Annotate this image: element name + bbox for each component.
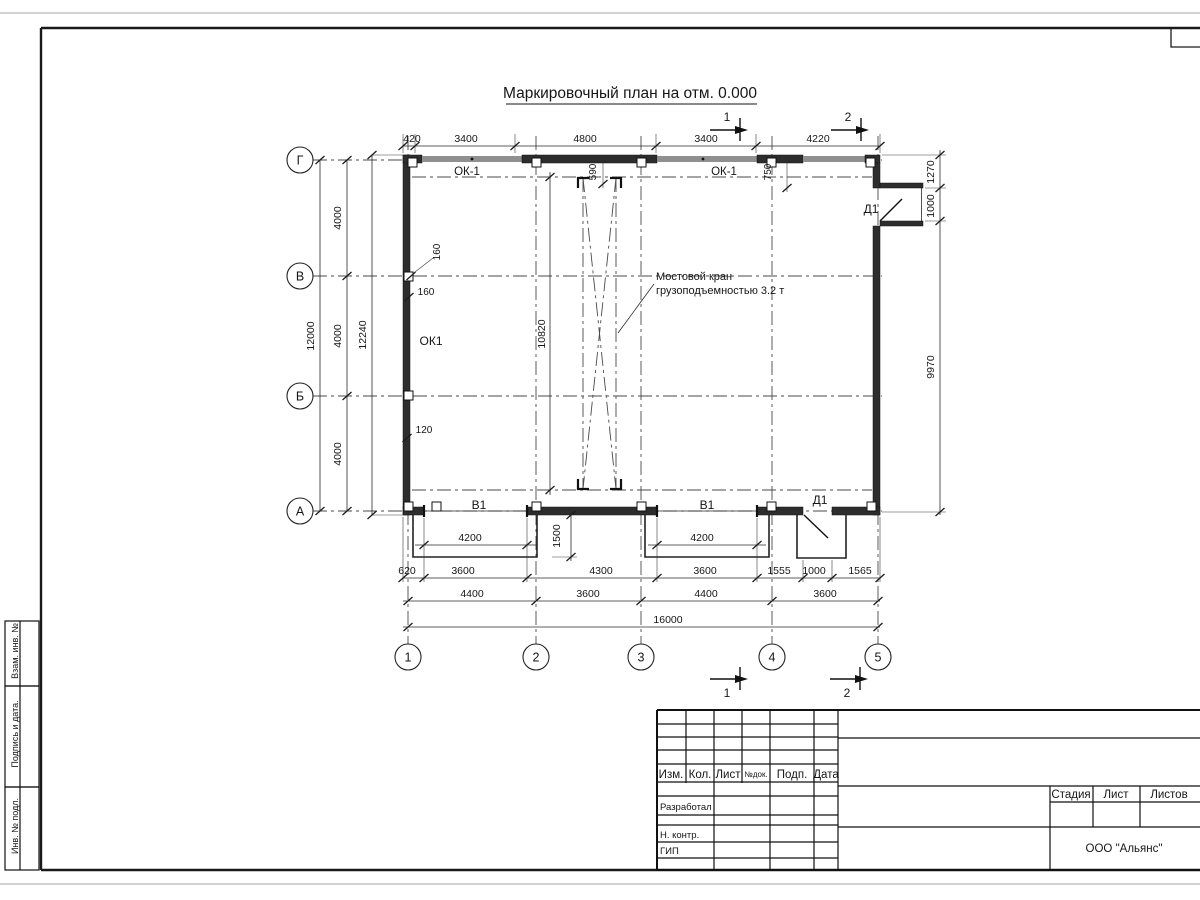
- dim-rowb-2: 4300: [589, 565, 613, 577]
- window-band-3: [803, 156, 865, 162]
- axis-row-b: Б: [296, 390, 304, 404]
- axis-col-5: 5: [875, 651, 882, 665]
- dim-right-1: 1000: [925, 194, 937, 218]
- dim-160-b: 160: [418, 287, 435, 298]
- tb-list: Лист: [716, 769, 742, 781]
- plan-title: Маркировочный план на отм. 0.000: [503, 85, 757, 104]
- dim-apron-depth: 1500: [551, 524, 563, 548]
- sheet-frame: [41, 28, 1200, 870]
- dim-rowc-0: 4400: [460, 588, 484, 600]
- label-window-top-right: ОК-1: [711, 166, 737, 178]
- drawing-canvas: Взам. инв. № Подпись и дата. Инв. № подл…: [0, 0, 1200, 900]
- dim-top-3: 3400: [694, 133, 718, 145]
- section-marker-1-bottom: 1: [710, 667, 748, 700]
- dim-top-2: 4800: [573, 133, 597, 145]
- crane-note-line2: грузоподъемностью 3.2 т: [656, 285, 784, 297]
- dim-rowb-5: 1000: [802, 565, 826, 577]
- tb-role-gip: ГИП: [660, 846, 679, 857]
- dim-top-0: 420: [403, 133, 421, 145]
- axis-col-2: 2: [533, 651, 540, 665]
- plan-labels: ОК-1 ОК-1 ОК1 В1 В1 Д1 Д1: [420, 166, 879, 512]
- dim-left-seg-1: 4000: [332, 324, 344, 348]
- dim-left-overall: 12240: [357, 320, 369, 349]
- dim-right-0: 1270: [925, 160, 937, 184]
- axis-row-g: Г: [297, 154, 304, 168]
- axis-col-3: 3: [638, 651, 645, 665]
- dimension-texts: 420 3400 4800 3400 4220 4000 4000 4000 1…: [305, 133, 937, 626]
- axis-row-v: В: [296, 270, 304, 284]
- building-walls: [403, 155, 923, 538]
- apron-door: [797, 515, 846, 558]
- svg-text:1: 1: [724, 110, 731, 124]
- label-gate1: В1: [472, 498, 487, 512]
- column-marks: [404, 158, 876, 511]
- label-window-top-left: ОК-1: [454, 166, 480, 178]
- stamp-inv: Инв. № подл.: [10, 798, 20, 854]
- label-door-right: Д1: [864, 202, 879, 216]
- vestibule-bottom-wall: [880, 221, 923, 226]
- dim-590: 590: [588, 163, 599, 180]
- svg-text:2: 2: [845, 110, 852, 124]
- dim-160-a: 160: [432, 243, 443, 260]
- dim-rowc-1: 3600: [576, 588, 600, 600]
- title-block: Изм. Кол. Лист №док. Подп. Дата Разработ…: [657, 710, 1200, 870]
- page-title: Маркировочный план на отм. 0.000: [503, 85, 757, 102]
- tb-company: ООО "Альянс": [1086, 843, 1163, 855]
- axis-row-a: А: [296, 505, 305, 519]
- window-band-2: [657, 156, 757, 162]
- tb-kol: Кол.: [689, 769, 712, 781]
- wall-left: [403, 155, 410, 515]
- dim-gate2-width: 4200: [690, 532, 714, 544]
- tb-role-razrabotal: Разработал: [660, 802, 712, 813]
- dim-left-total: 12000: [305, 321, 317, 350]
- side-stamp: Взам. инв. № Подпись и дата. Инв. № подл…: [5, 621, 39, 870]
- dim-crane-length: 10820: [536, 319, 548, 348]
- dim-rowb-4: 1555: [767, 565, 791, 577]
- dim-750: 750: [763, 163, 774, 180]
- axis-col-4: 4: [769, 651, 776, 665]
- label-gate2: В1: [700, 498, 715, 512]
- stamp-podpis: Подпись и дата.: [10, 700, 20, 767]
- dim-left-seg-2: 4000: [332, 442, 344, 466]
- dim-120: 120: [416, 425, 433, 436]
- dim-gate1-width: 4200: [458, 532, 482, 544]
- dim-total: 16000: [653, 614, 682, 626]
- tb-list2: Лист: [1104, 789, 1130, 801]
- svg-text:2: 2: [844, 686, 851, 700]
- dim-top-1: 3400: [454, 133, 478, 145]
- vestibule-top-wall: [880, 183, 923, 188]
- stamp-vzam: Взам. инв. №: [10, 623, 20, 679]
- tb-stadiya: Стадия: [1051, 789, 1090, 801]
- tb-data: Дата: [813, 769, 839, 781]
- dim-top-4: 4220: [806, 133, 830, 145]
- section-marker-2-top: 2: [831, 110, 869, 141]
- dim-rowb-1: 3600: [451, 565, 475, 577]
- crane-bridge: [578, 178, 621, 489]
- dim-rowc-2: 4400: [694, 588, 718, 600]
- dim-rowc-3: 3600: [813, 588, 837, 600]
- tb-podp: Подп.: [777, 769, 808, 781]
- tb-izm: Изм.: [659, 769, 684, 781]
- section-marker-2-bottom: 2: [830, 667, 868, 700]
- dim-rowb-3: 3600: [693, 565, 717, 577]
- drawing-sheet: Взам. инв. № Подпись и дата. Инв. № подл…: [0, 0, 1200, 900]
- crane-note-line1: Мостовой кран: [656, 271, 732, 283]
- door-leaf-right: [880, 199, 902, 221]
- dim-right-2: 9970: [925, 355, 937, 379]
- label-window-left: ОК1: [420, 334, 443, 348]
- crane-note: Мостовой кран грузоподъемностью 3.2 т: [618, 271, 784, 333]
- svg-text:1: 1: [724, 686, 731, 700]
- corner-doc-box: [1171, 28, 1200, 47]
- wall-right-lower: [873, 226, 880, 515]
- tb-ndok: №док.: [744, 770, 767, 779]
- axis-col-1: 1: [405, 651, 412, 665]
- dim-rowb-6: 1565: [848, 565, 872, 577]
- dim-left-seg-0: 4000: [332, 206, 344, 230]
- page-edges: [0, 13, 1200, 884]
- dim-rowb-0: 620: [398, 565, 416, 577]
- section-markers: 1 2 1 2: [710, 110, 869, 700]
- label-door-bottom: Д1: [813, 493, 828, 507]
- tb-role-nkontr: Н. контр.: [660, 830, 699, 841]
- door-leaf-bottom: [804, 515, 828, 538]
- tb-listov: Листов: [1150, 789, 1187, 801]
